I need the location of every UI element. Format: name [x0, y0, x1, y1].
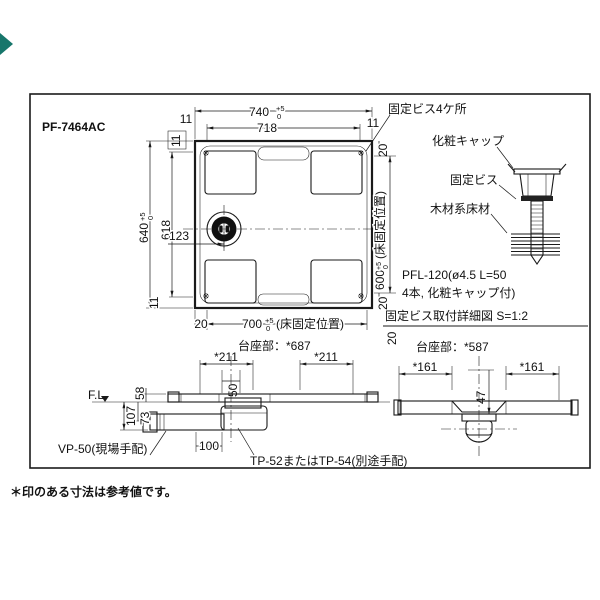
dim-11-margin-bottom: 11 [147, 296, 161, 309]
dim-123: 123 [169, 229, 189, 243]
dim-11-right: 11 [367, 116, 380, 130]
dim-700-floor-label: (床固定位置) [276, 316, 344, 331]
dim-718: 718 [257, 121, 277, 135]
dim-20-bottom-right-2: 20 [385, 331, 399, 345]
label-wood-flooring: 木材系床材 [430, 202, 490, 216]
pedestal-label-587: 台座部：*587 [416, 339, 489, 354]
dim-107: 107 [124, 406, 138, 426]
label-decorative-cap: 化粧キャップ [432, 134, 504, 148]
dim-600: 600 [373, 270, 387, 290]
dim-211-right: *211 [314, 350, 338, 364]
floor-level-label: F.L [88, 388, 104, 402]
dim-211-left: *211 [214, 350, 238, 364]
detail-caption: 固定ビス取付詳細図 S=1:2 [385, 308, 528, 323]
dim-740-tol-zero: 0 [277, 112, 281, 121]
dim-700: 700 [242, 317, 262, 331]
dim-50: 50 [226, 383, 240, 397]
screw-spec-line1: PFL-120(ø4.5 L=50 [402, 268, 507, 282]
dim-640-tol-zero: 0 [146, 216, 155, 220]
model-number: PF-7464AC [42, 120, 106, 134]
dim-161-left: *161 [413, 360, 438, 374]
label-vp50-pipe: VP-50(現場手配) [58, 442, 147, 456]
dim-640: 640 [137, 223, 151, 243]
dim-11-left: 11 [180, 112, 193, 126]
dim-20-top-right: 20 [376, 143, 390, 157]
dim-58: 58 [133, 386, 147, 400]
dim-11-margin-top: 11 [169, 134, 183, 147]
label-fixing-screws-4: 固定ビス4ケ所 [388, 101, 467, 116]
pedestal-label-687: 台座部：*687 [238, 338, 311, 353]
technical-drawing: PF-7464AC [0, 0, 600, 600]
reference-note: ＊印のある寸法は参考値です。 [10, 484, 177, 499]
screw-spec-line2: 4本, 化粧キャップ付) [402, 286, 515, 300]
dim-740: 740 [249, 105, 269, 119]
dim-20-bottom-left: 20 [194, 317, 208, 331]
dim-600-floor-label: (床固定位置) [372, 191, 387, 259]
corner-marker-triangle [0, 33, 13, 55]
dim-100: 100 [199, 439, 219, 453]
dim-161-right: *161 [520, 360, 545, 374]
dim-700-tol-zero: 0 [266, 324, 270, 333]
label-fixing-screw: 固定ビス [450, 172, 498, 187]
dim-600-tol-plus: +5 [376, 262, 383, 270]
dim-600-tol-zero: 0 [383, 265, 390, 269]
label-trap-tp52: TP-52またはTP-54(別途手配) [250, 453, 407, 468]
dim-47: 47 [474, 390, 488, 404]
drawing-sheet: PF-7464AC [0, 0, 600, 600]
dim-73: 73 [138, 411, 152, 425]
dim-20-bottom-right: 20 [376, 296, 390, 310]
